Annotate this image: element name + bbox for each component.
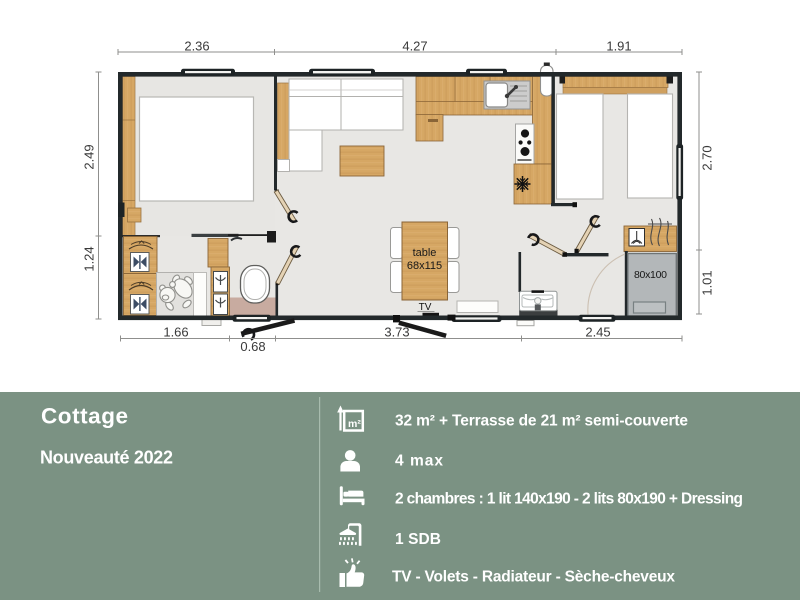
svg-text:80x100: 80x100 [634,269,667,281]
svg-text:1.24: 1.24 [82,246,97,271]
svg-text:4.27: 4.27 [402,39,427,54]
svg-text:2.45: 2.45 [585,325,610,340]
svg-text:3.73: 3.73 [384,325,409,340]
svg-text:m²: m² [348,418,361,430]
svg-text:2.36: 2.36 [184,39,209,54]
svg-text:2.70: 2.70 [700,145,715,170]
svg-text:TV - Volets - Radiateur - Sèch: TV - Volets - Radiateur - Sèche-cheveux [392,569,675,586]
svg-text:32 m² + Terrasse de 21 m² sem: 32 m² + Terrasse de 21 m² semi-couverte [395,413,688,430]
svg-text:1 SDB: 1 SDB [395,531,441,548]
svg-text:1.01: 1.01 [700,270,715,295]
svg-text:Cottage: Cottage [41,404,128,429]
svg-text:0.68: 0.68 [240,339,265,354]
svg-text:1.66: 1.66 [163,325,188,340]
svg-text:68x115: 68x115 [407,260,442,272]
svg-text:2 chambres : 1 lit 140x190 - 2: 2 chambres : 1 lit 140x190 - 2 lits 80x1… [395,491,743,508]
svg-text:table: table [413,247,437,259]
svg-text:4 max: 4 max [395,453,443,470]
svg-text:2.49: 2.49 [82,144,97,169]
svg-text:Nouveauté 2022: Nouveauté 2022 [40,448,173,468]
svg-text:1.91: 1.91 [606,39,631,54]
